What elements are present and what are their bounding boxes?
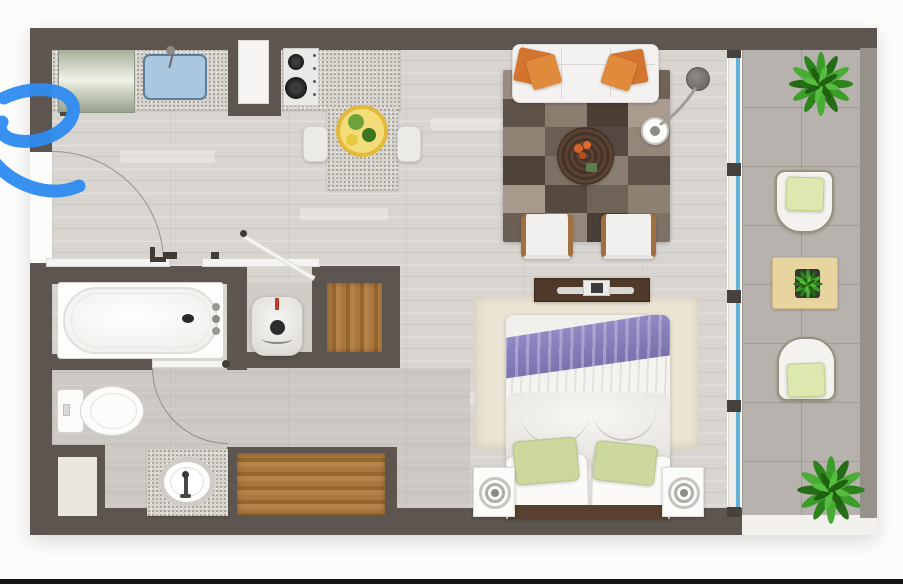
rug-patch xyxy=(503,127,545,156)
refrigerator xyxy=(58,48,135,113)
nightstand-right xyxy=(662,467,704,517)
closet-wall-left xyxy=(312,266,327,368)
vanity-faucet-handle xyxy=(180,494,191,498)
hall-door-hinge xyxy=(240,230,247,237)
rug-patch xyxy=(545,185,587,214)
bottom-divider-bar xyxy=(0,579,903,584)
bathtub-faucet-knob xyxy=(212,303,220,311)
rug-patch xyxy=(628,156,670,185)
nightstand-lamp-center xyxy=(491,489,499,497)
table-planter-box xyxy=(795,269,820,298)
water-heater-seam xyxy=(262,334,292,344)
door-frame-cap xyxy=(727,50,741,58)
toilet-flush-button xyxy=(63,404,70,416)
green-pillow-right xyxy=(592,440,658,486)
flower-orange xyxy=(583,141,591,149)
balcony-wall-right xyxy=(860,48,877,518)
flower-orange xyxy=(579,152,586,159)
vanity-faucet-head xyxy=(182,471,189,478)
sliding-glass-door xyxy=(736,50,740,515)
nightstand-left xyxy=(473,467,515,517)
floor-highlight xyxy=(300,208,388,220)
wall-left-upper xyxy=(30,28,52,152)
door-panel-joint xyxy=(727,163,741,176)
water-heater-indicator xyxy=(275,298,279,310)
rug-patch xyxy=(503,185,545,214)
refrigerator-hinge xyxy=(60,112,70,116)
chair-cushion-green xyxy=(786,362,825,397)
closet-wall-right xyxy=(382,266,400,368)
fruit-green xyxy=(348,114,364,130)
armchair-right xyxy=(601,214,656,259)
nightstand-lamp-center xyxy=(680,489,688,497)
wall-left-lower xyxy=(30,263,52,535)
bathroom-door-hinge xyxy=(222,360,230,368)
center-wood-closet xyxy=(327,283,382,352)
partition-end-cap xyxy=(163,252,177,259)
stove-knob xyxy=(313,93,316,96)
bar-stool-left xyxy=(303,126,328,162)
rug-patch xyxy=(628,185,670,214)
bathroom-door-leaf xyxy=(152,360,228,368)
door-panel-joint xyxy=(727,290,741,303)
floor-highlight xyxy=(120,150,215,163)
fruit-dark-green xyxy=(362,128,376,142)
green-pillow-left xyxy=(512,436,580,485)
entry-door-stop xyxy=(150,247,155,260)
balcony-ledge xyxy=(742,515,877,535)
toilet-seat-line xyxy=(90,393,137,429)
bathtub-faucet-knob xyxy=(212,315,220,323)
hall-partition-right xyxy=(202,258,320,267)
rug-patch xyxy=(587,185,629,214)
chair-cushion-green xyxy=(785,176,824,211)
table-plant-cup xyxy=(586,163,597,172)
floor-plan-canvas xyxy=(0,0,903,585)
water-heater-knob xyxy=(270,320,285,335)
stove-burner-small xyxy=(288,54,304,70)
headboard xyxy=(508,505,668,519)
floor-lamp-base-pole xyxy=(650,126,660,136)
pantry-column xyxy=(238,40,269,104)
bathtub-drain xyxy=(182,314,194,323)
wall-top xyxy=(30,28,877,50)
stove-knob xyxy=(313,67,316,70)
rug-patch xyxy=(503,156,545,185)
double-bed xyxy=(506,315,670,519)
tv-mount xyxy=(591,283,603,293)
floor-lamp-head xyxy=(686,67,710,91)
stove-knob xyxy=(313,80,316,83)
kitchen-sink xyxy=(143,54,207,100)
sofa-cushion-divider xyxy=(561,48,562,98)
door-panel-joint xyxy=(727,400,741,412)
stove-knob xyxy=(313,54,316,57)
corner-cabinet xyxy=(58,457,97,516)
bar-stool-right xyxy=(397,126,421,162)
bottom-wood-closet xyxy=(237,453,385,515)
bathtub-faucet-knob xyxy=(212,327,220,335)
sliding-door-track xyxy=(728,50,736,515)
fruit-yellow xyxy=(346,134,358,146)
armchair-left xyxy=(521,214,573,259)
door-frame-cap xyxy=(727,507,741,517)
partition-end-cap xyxy=(211,252,219,259)
stove-burner-large xyxy=(285,77,307,99)
